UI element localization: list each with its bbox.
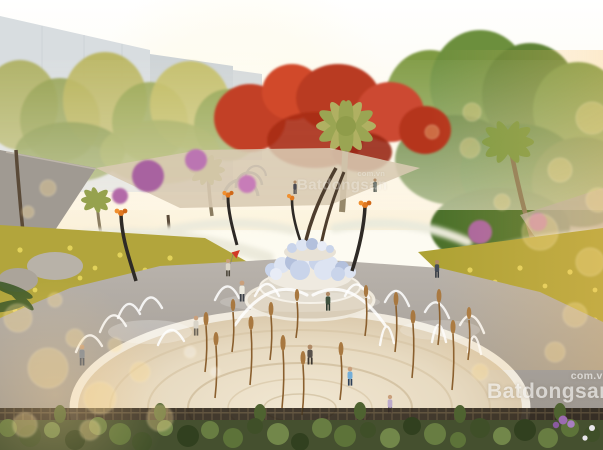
park-render-image: com.vn Batdongsan com.vn Batdongsan [0,0,603,450]
park-scene [0,0,603,450]
